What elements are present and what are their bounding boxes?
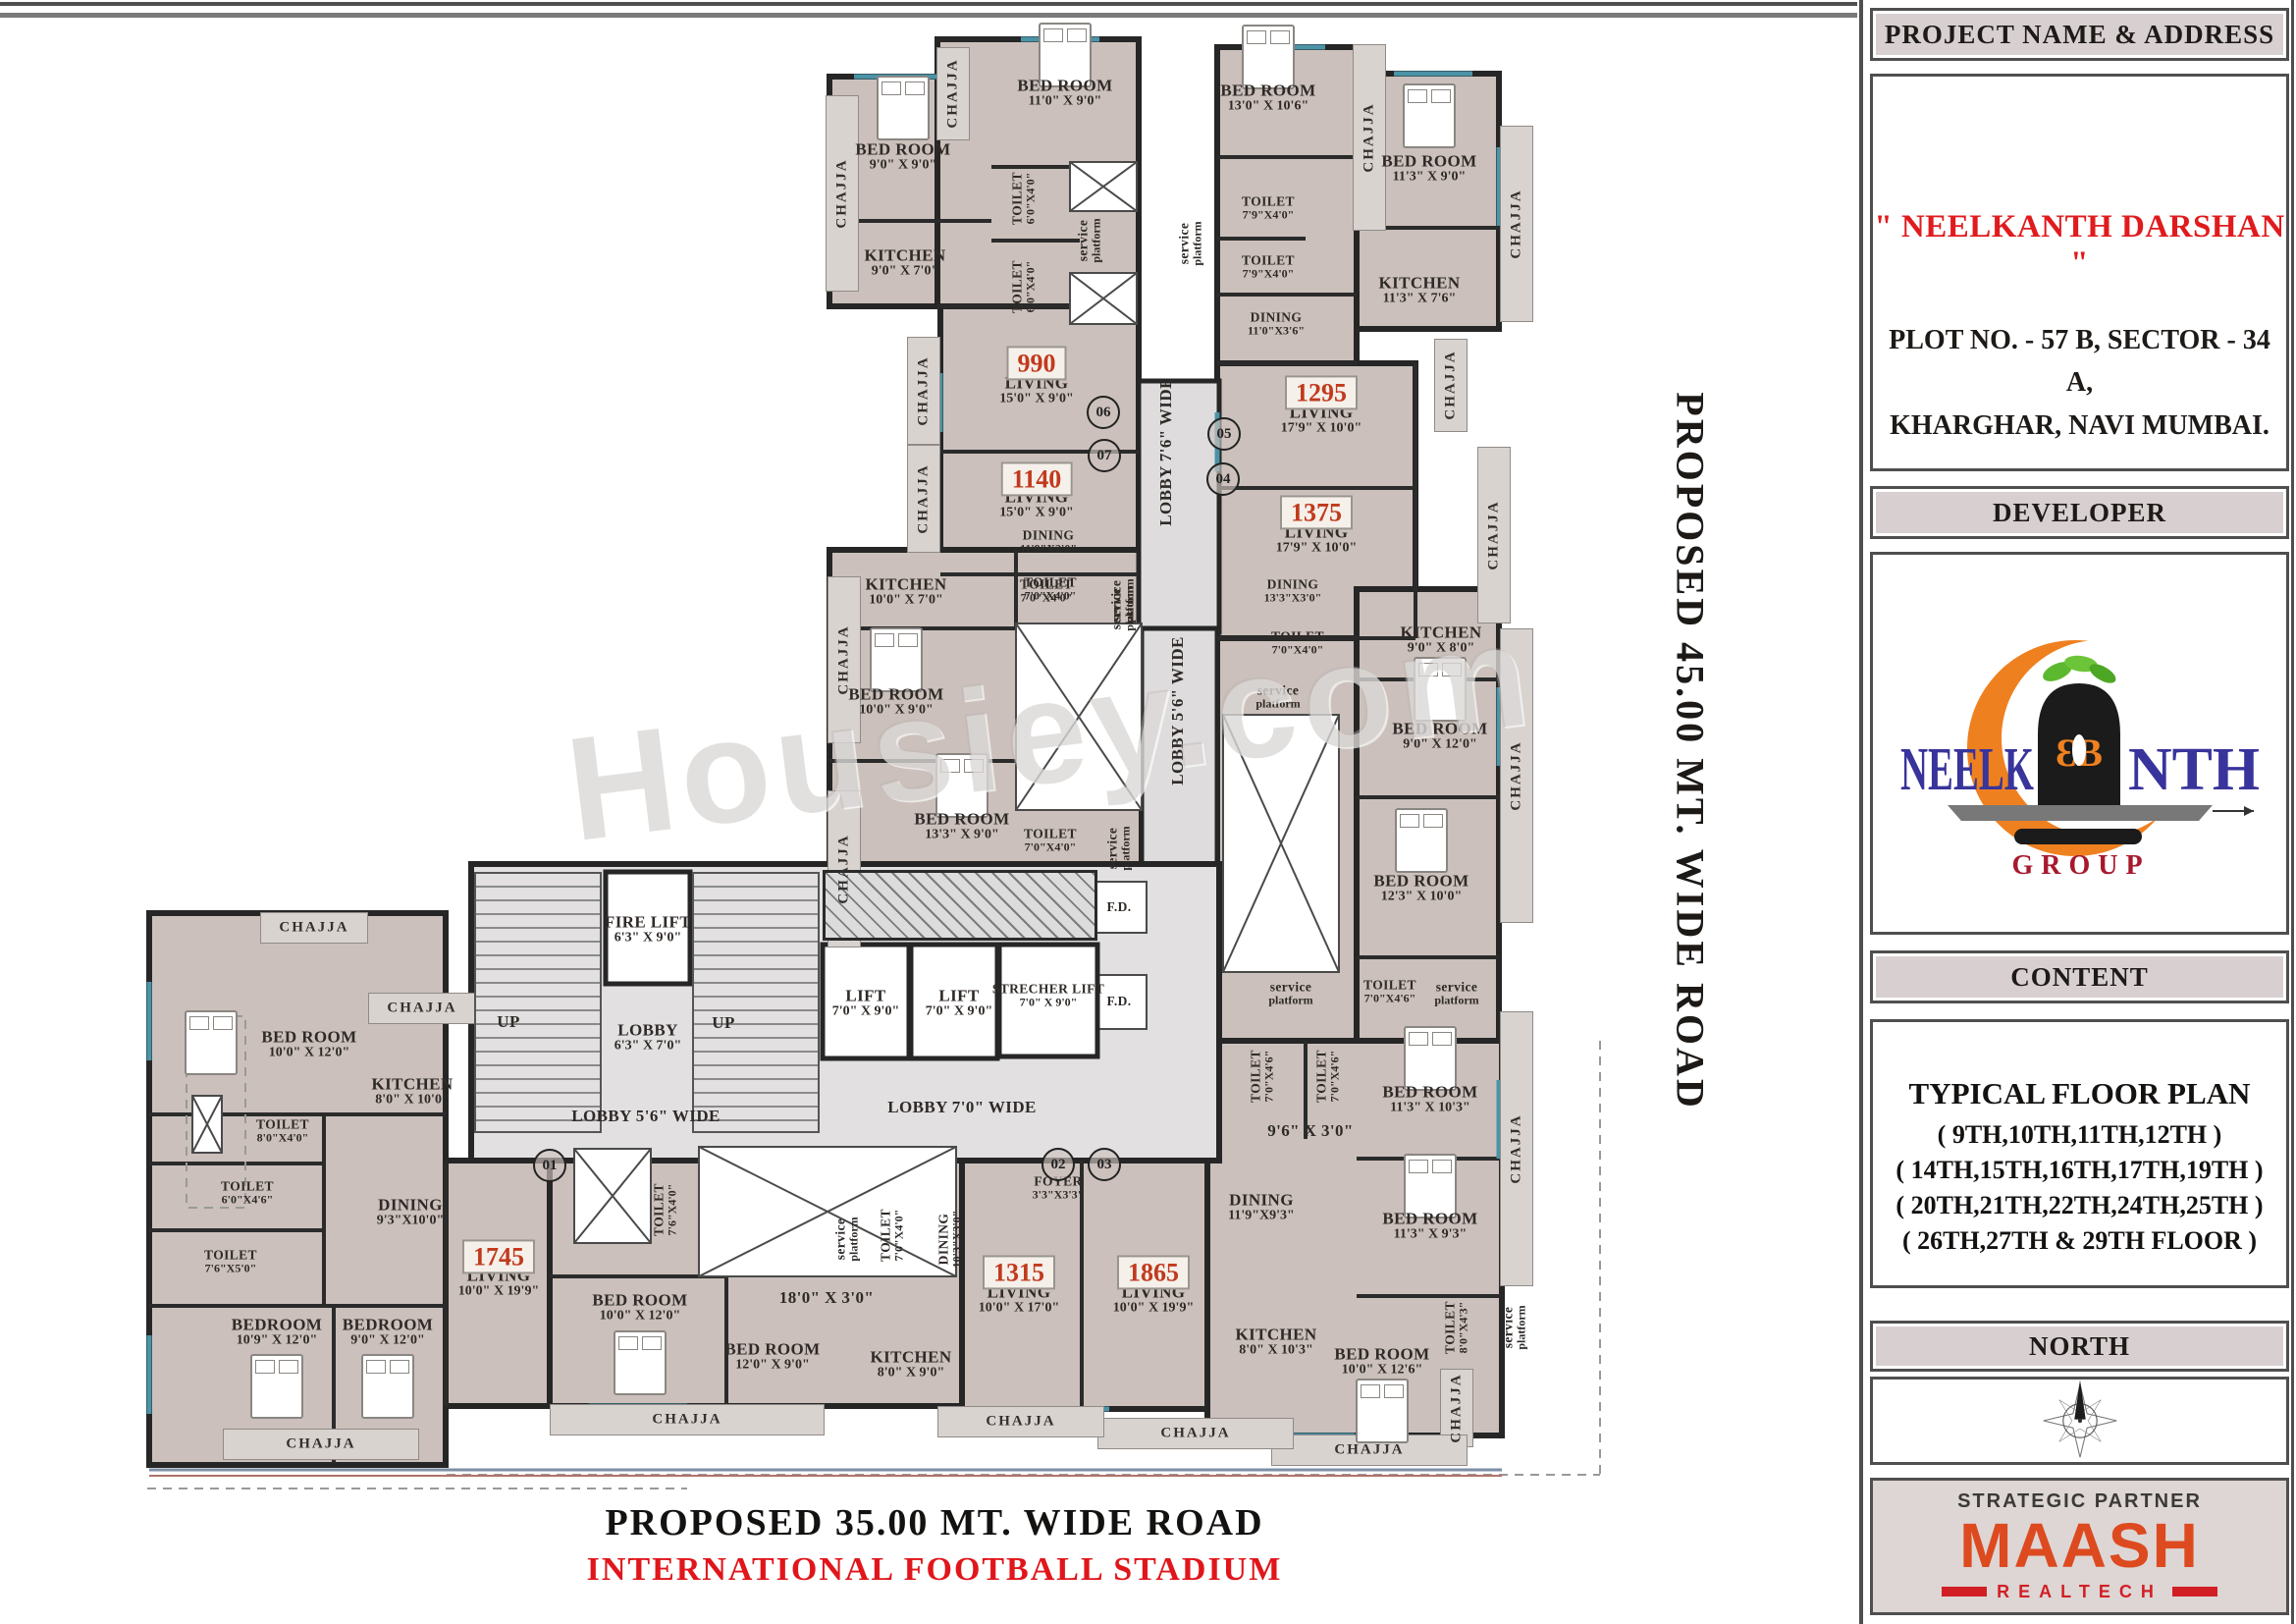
room-label: BED ROOM10'0" X 12'0" [592, 1292, 687, 1325]
flat-number-badge: 01 [533, 1149, 566, 1182]
chajja-label: CHAJJA [387, 1001, 456, 1017]
room-label: TOILET6'0"X4'6" [221, 1179, 274, 1206]
room-label: LOBBY 5'6" WIDE [571, 1108, 720, 1125]
room-label: serviceplatform [1105, 826, 1132, 870]
room-label: UP [497, 1013, 519, 1031]
chajja-label: CHAJJA [1509, 740, 1525, 810]
room-label: DINING11'9"X2'0" [1020, 528, 1077, 555]
room-label: KITCHEN8'0" X 10'3" [1235, 1326, 1316, 1359]
room-label: BED ROOM10'0" X 12'0" [261, 1029, 356, 1061]
chajja-label: CHAJJA [836, 834, 853, 903]
room-label: TOILET7'9"X4'0" [1242, 194, 1295, 221]
room-label: BEDROOM9'0" X 12'0" [343, 1317, 434, 1349]
chajja-label: CHAJJA [834, 158, 851, 228]
room-label: BED ROOM11'3" X 9'3" [1382, 1211, 1477, 1243]
room-label: serviceplatform [1268, 980, 1312, 1006]
room-label: TOILET7'6"X4'0" [652, 1183, 678, 1236]
staircase-left [474, 872, 602, 1133]
bed-icon [1395, 808, 1448, 873]
room-label: LOBBY 7'6" WIDE [1157, 377, 1175, 525]
room-label: UP [712, 1014, 734, 1032]
room-label: LOBBY 5'6" WIDE [1169, 636, 1187, 785]
room-label: LIFT7'0" X 9'0" [832, 988, 899, 1020]
room-label: BED ROOM13'0" X 10'6" [1220, 82, 1315, 115]
chajja-label: CHAJJA [1486, 500, 1503, 569]
road-label-right: PROPOSED 45.00 MT. WIDE ROAD [1668, 392, 1714, 1110]
chajja-label: CHAJJA [286, 1436, 355, 1453]
room-label: KITCHEN9'0" X 7'0" [864, 247, 945, 280]
bed-icon [361, 1354, 414, 1419]
room-label: BED ROOM12'0" X 9'0" [724, 1341, 820, 1374]
flat-number-badge: 03 [1088, 1148, 1121, 1181]
bed-icon [250, 1354, 303, 1419]
room-label: 9'6" X 3'0" [1267, 1122, 1354, 1140]
bed-icon [1403, 83, 1456, 148]
room-label: LOBBY6'3" X 7'0" [614, 1022, 681, 1055]
room-label: STRECHER LIFT7'0" X 9'0" [992, 982, 1104, 1008]
room-label: TOILET7'0"X4'6" [1314, 1050, 1341, 1103]
room-label: serviceplatform [1076, 218, 1102, 262]
room-label: TOILET7'0"X4'0" [879, 1209, 905, 1262]
stadium-label: INTERNATIONAL FOOTBALL STADIUM [587, 1551, 1283, 1589]
room-label: serviceplatform [1109, 578, 1136, 623]
room-label: KITCHEN8'0" X 10'0" [371, 1076, 453, 1109]
bed-icon [1356, 1379, 1409, 1443]
room-label: DINING11'9"X9'3" [1228, 1192, 1295, 1224]
room-label: F.D. [1106, 995, 1131, 1008]
room-label: BED ROOM13'3" X 9'0" [914, 811, 1009, 843]
flat-number-badge: 07 [1088, 439, 1121, 472]
room-label: BED ROOM11'0" X 9'0" [1017, 78, 1112, 110]
bed-icon [185, 1010, 238, 1075]
room-label: TOILET7'0"X4'0" [1024, 827, 1077, 853]
chajja-label: CHAJJA [1334, 1442, 1404, 1459]
room-label: 18'0" X 3'0" [779, 1289, 874, 1307]
room-label: TOILET6'0"X4'0" [1010, 260, 1037, 313]
chajja-label: CHAJJA [945, 58, 962, 128]
room-label: serviceplatform [1255, 683, 1300, 710]
room-label: BED ROOM10'0" X 9'0" [848, 686, 943, 719]
chajja-label: CHAJJA [1160, 1426, 1230, 1442]
bed-icon [1414, 657, 1467, 722]
room-label: BEDROOM10'9" X 12'0" [232, 1317, 323, 1349]
flat-number-badge: 02 [1041, 1148, 1075, 1181]
unit-area-number: 1295 [1285, 375, 1358, 409]
room-label: serviceplatform [833, 1217, 860, 1261]
flat-number-badge: 04 [1206, 462, 1240, 496]
chajja-label: CHAJJA [916, 463, 933, 533]
room-label: BED ROOM9'0" X 9'0" [855, 141, 950, 174]
flat-number-badge: 06 [1087, 396, 1120, 429]
room-label: TOILET8'0"X4'0" [256, 1117, 309, 1144]
bed-icon [877, 76, 930, 140]
room-label: TOILET7'9"X4'0" [1242, 253, 1295, 280]
bed-icon [614, 1330, 667, 1395]
unit-area-number: 990 [1007, 346, 1067, 380]
room-label: TOILET7'0"X4'0" [1020, 577, 1073, 604]
unit-area-number: 1375 [1280, 495, 1353, 529]
bed-icon [1242, 25, 1295, 89]
room-label: DINING11'0"X3'6" [1248, 310, 1305, 337]
chajja-label: CHAJJA [279, 920, 348, 937]
room-label: TOILET7'0"X4'0" [1271, 629, 1324, 656]
room-label: F.D. [1106, 900, 1131, 914]
room-label: serviceplatform [1501, 1305, 1527, 1349]
chajja-label: CHAJJA [1443, 350, 1460, 419]
room-label: DINING10'3"X3'0" [936, 1211, 963, 1269]
bed-icon [1404, 1026, 1457, 1091]
room-label: BED ROOM12'3" X 10'0" [1373, 873, 1468, 905]
flat-number-badge: 05 [1207, 417, 1241, 451]
unit-area-number: 1745 [462, 1239, 535, 1273]
room-label: BED ROOM10'0" X 12'6" [1334, 1346, 1429, 1379]
chajja-label: CHAJJA [1509, 189, 1525, 258]
bed-icon [870, 627, 923, 692]
room-label: LOBBY 7'0" WIDE [887, 1099, 1036, 1116]
room-label: DINING13'3"X3'0" [1264, 577, 1322, 604]
chajja-label: CHAJJA [652, 1412, 721, 1429]
room-label: DINING9'3"X10'0" [377, 1197, 444, 1229]
room-label: KITCHEN11'3" X 7'6" [1378, 275, 1460, 307]
floor-plan-sheet: CHAJJACHAJJACHAJJACHAJJACHAJJACHAJJACHAJ… [0, 0, 2296, 1624]
room-label: LIFT7'0" X 9'0" [926, 988, 992, 1020]
lift-machine-hatch [823, 870, 1097, 941]
room-label: FIRE LIFT6'3" X 9'0" [605, 914, 691, 947]
room-label: KITCHEN9'0" X 8'0" [1400, 624, 1481, 657]
floorplan-drawing [0, 0, 2296, 1624]
room-label: TOILET6'0"X4'0" [1010, 172, 1037, 225]
road-label-bottom: PROPOSED 35.00 MT. WIDE ROAD [605, 1501, 1263, 1544]
room-label: TOILET8'0"X4'3" [1443, 1301, 1469, 1354]
chajja-label: CHAJJA [1449, 1373, 1466, 1442]
room-label: TOILET7'0"X4'6" [1249, 1050, 1275, 1103]
unit-area-number: 1315 [983, 1255, 1055, 1289]
chajja-label: CHAJJA [1509, 1113, 1525, 1183]
room-label: BED ROOM11'3" X 9'0" [1381, 153, 1476, 186]
bed-icon [935, 753, 988, 818]
staircase-right [692, 872, 820, 1133]
room-label: KITCHEN10'0" X 7'0" [865, 576, 946, 609]
room-label: BED ROOM11'3" X 10'3" [1382, 1084, 1477, 1116]
room-label: serviceplatform [1177, 221, 1203, 265]
chajja-label: CHAJJA [1362, 102, 1378, 172]
room-label: TOILET7'0"X4'6" [1363, 978, 1416, 1004]
room-label: TOILET7'6"X5'0" [204, 1248, 257, 1274]
unit-area-number: 1140 [1001, 461, 1073, 496]
chajja-label: CHAJJA [986, 1414, 1055, 1431]
unit-area-number: 1865 [1117, 1255, 1190, 1289]
room-label: KITCHEN8'0" X 9'0" [870, 1349, 951, 1381]
chajja-label: CHAJJA [916, 355, 933, 425]
room-label: serviceplatform [1434, 980, 1478, 1006]
room-label: BED ROOM9'0" X 12'0" [1392, 721, 1487, 753]
